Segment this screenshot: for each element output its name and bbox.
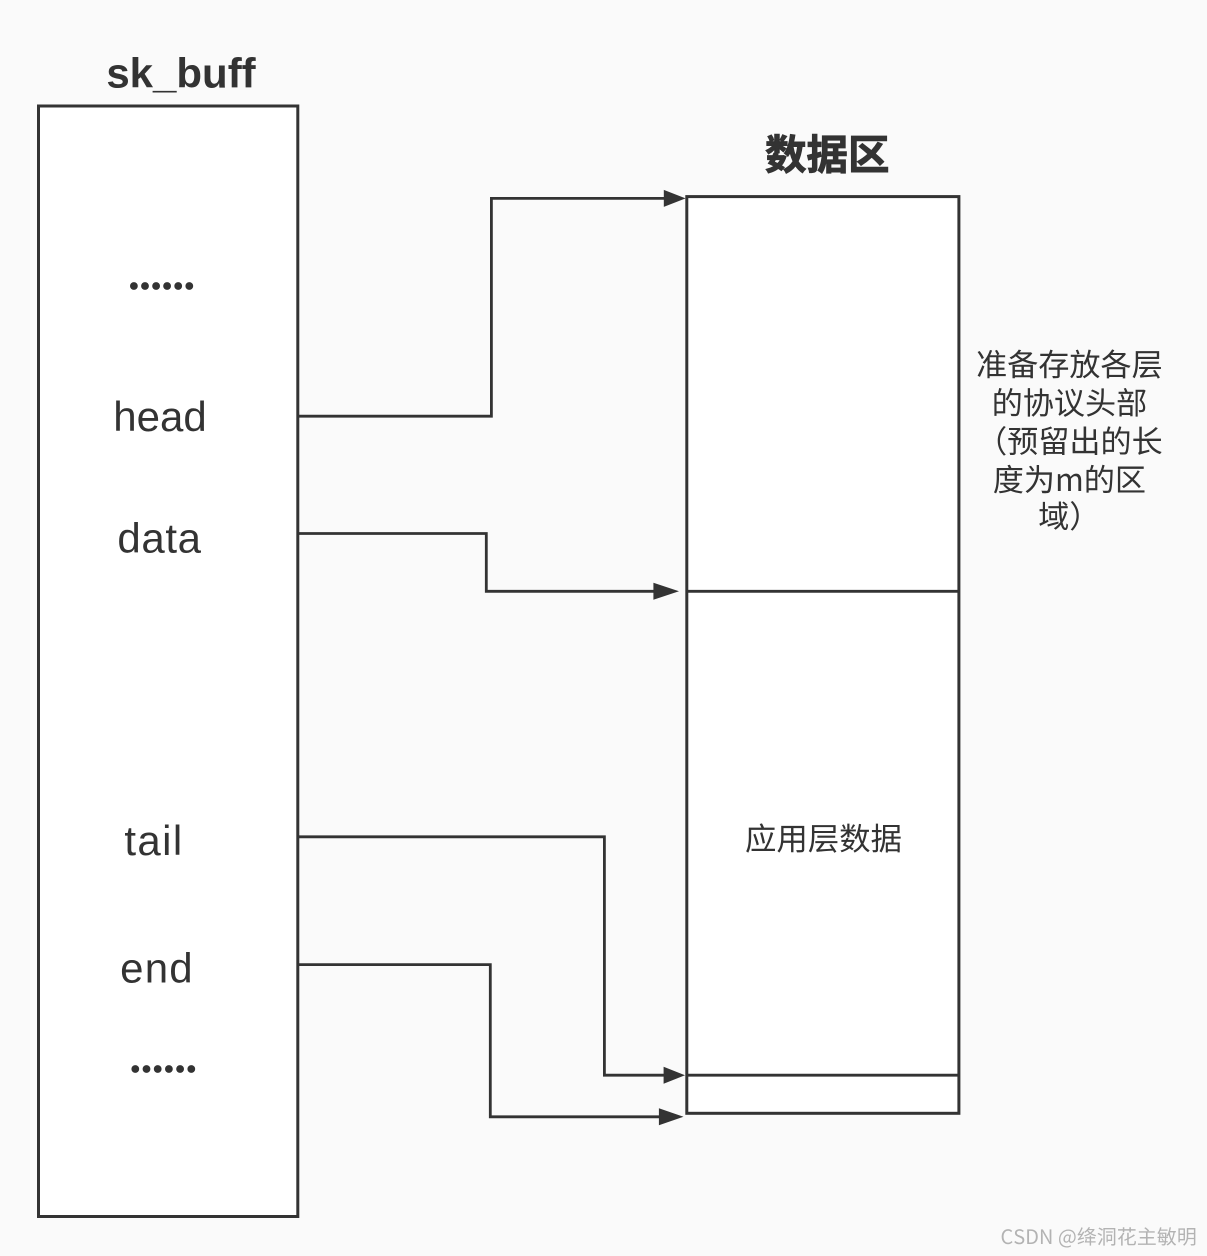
- svg-text:head: head: [113, 393, 206, 440]
- svg-text:tail: tail: [124, 817, 183, 864]
- svg-text:end: end: [120, 945, 194, 992]
- svg-text:data: data: [117, 515, 201, 562]
- svg-text:sk_buff: sk_buff: [106, 50, 256, 97]
